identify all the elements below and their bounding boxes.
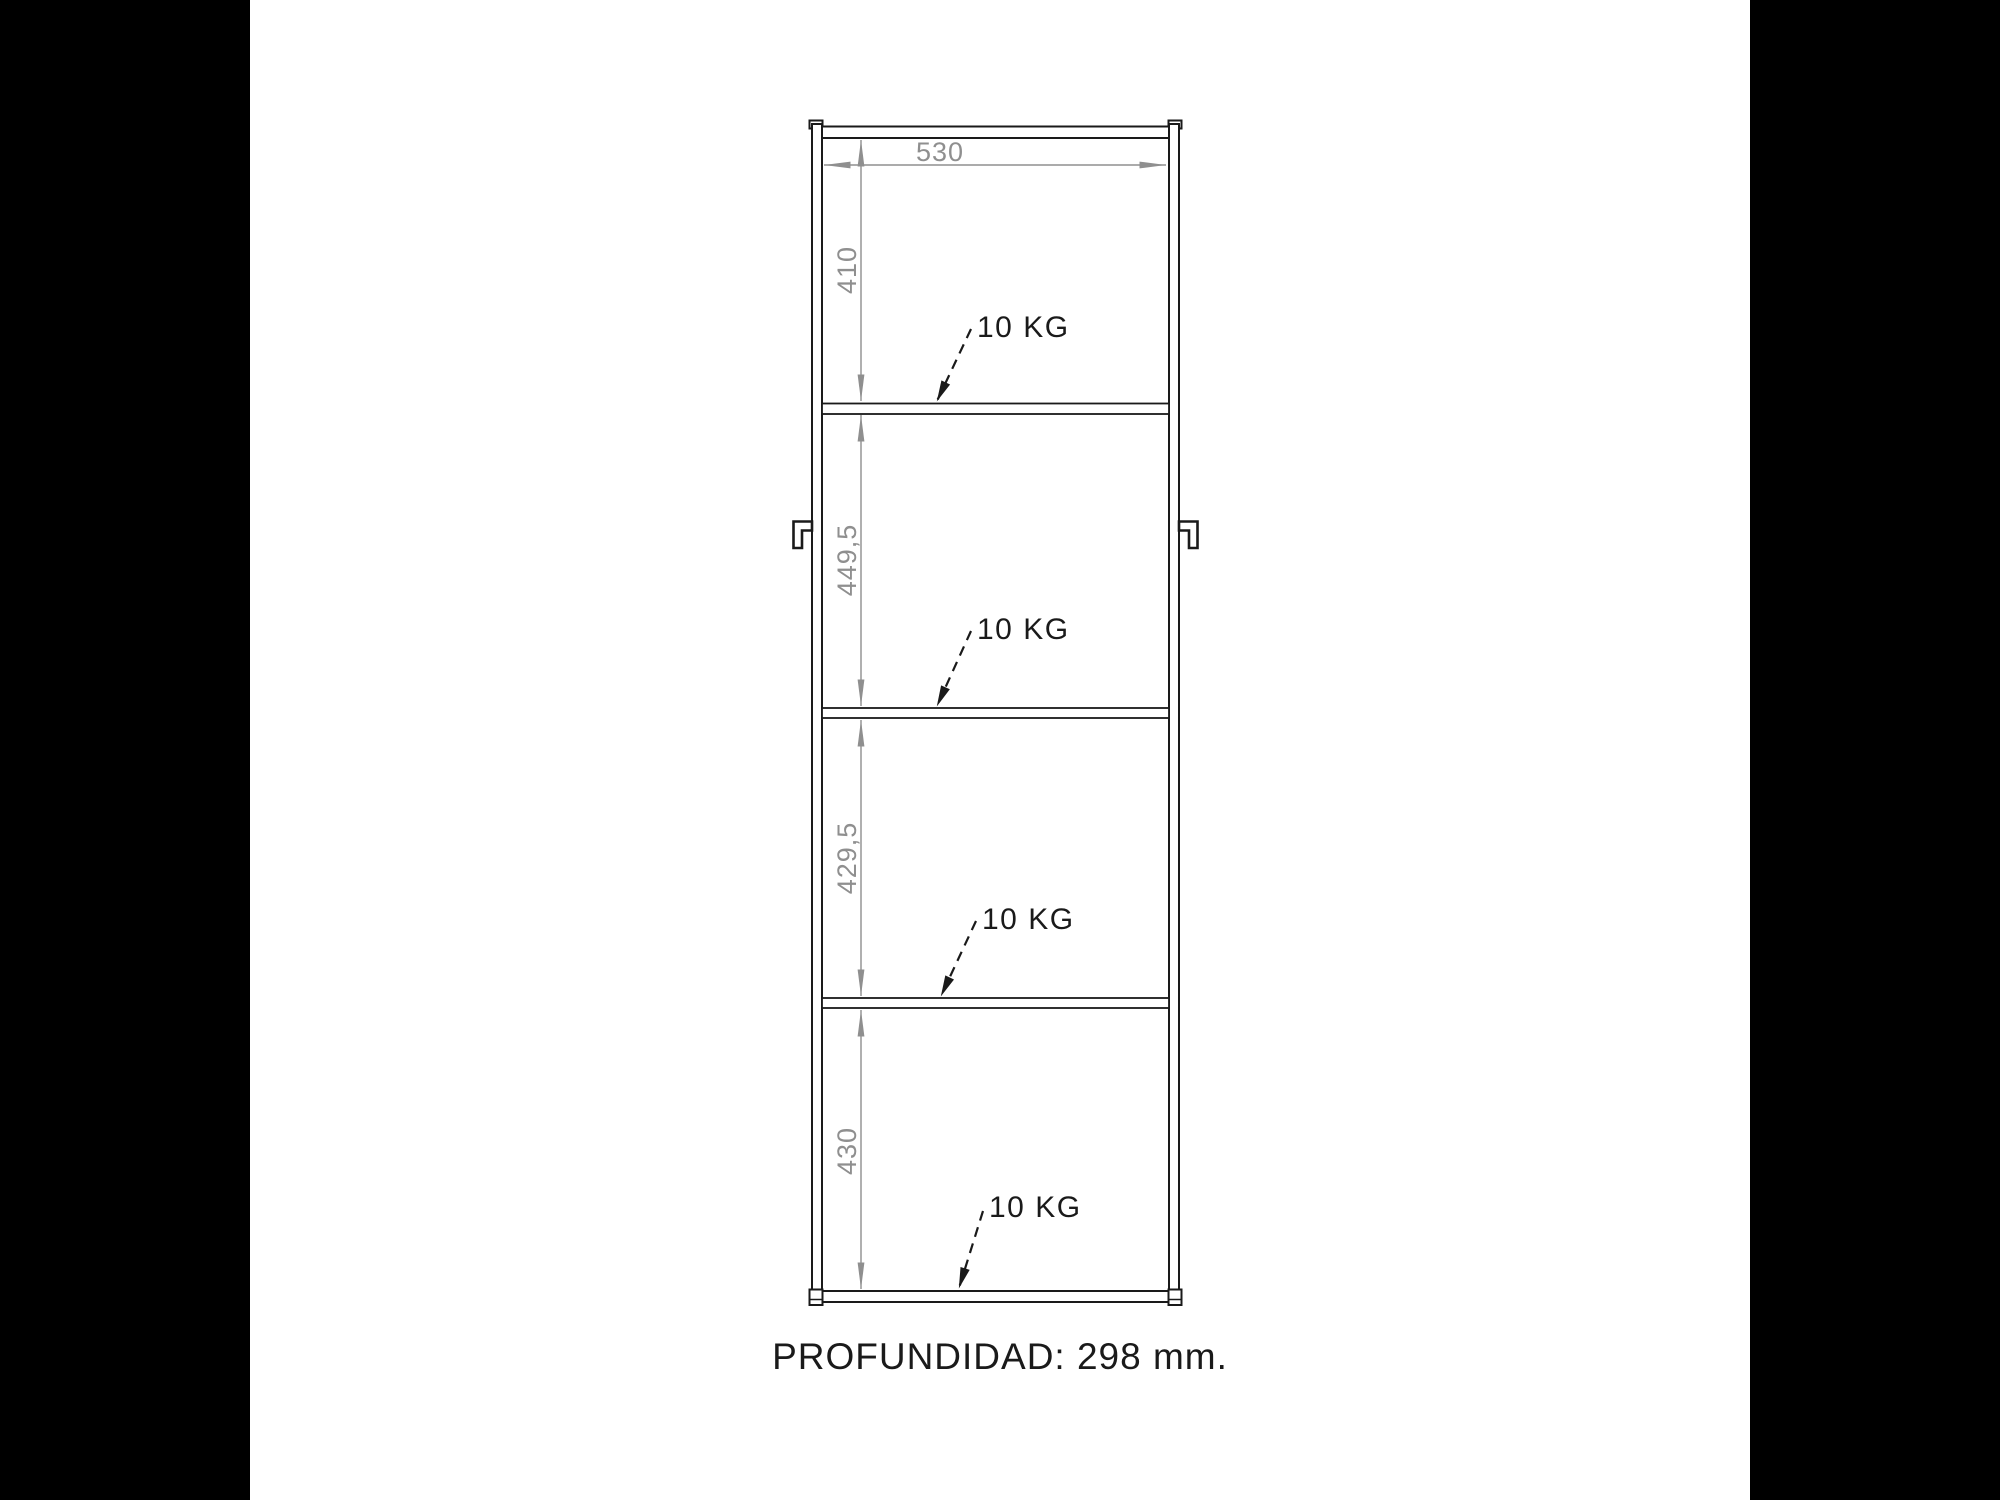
foot-right bbox=[1169, 1290, 1182, 1306]
load-leader-4 bbox=[959, 1211, 983, 1288]
shelf-3 bbox=[822, 998, 1169, 1008]
foot-left bbox=[810, 1290, 823, 1306]
shelf-unit-drawing: 530 410 449,5 429,5 430 10 KG 10 KG 10 K… bbox=[0, 0, 2000, 1500]
wall-bracket-right bbox=[1179, 522, 1198, 549]
load-label-4: 10 KG bbox=[989, 1191, 1082, 1224]
side-panel-right bbox=[1169, 124, 1179, 1305]
compartment-1-height-value: 410 bbox=[832, 246, 862, 294]
load-leader-3 bbox=[941, 921, 976, 996]
technical-drawing-page: 530 410 449,5 429,5 430 10 KG 10 KG 10 K… bbox=[0, 0, 2000, 1500]
compartment-3-height-value: 429,5 bbox=[832, 822, 862, 895]
shelf-2 bbox=[822, 708, 1169, 718]
load-label-1: 10 KG bbox=[977, 311, 1070, 344]
bottom-panel bbox=[822, 1291, 1169, 1302]
wall-bracket-left bbox=[794, 522, 813, 549]
load-annotations: 10 KG 10 KG 10 KG 10 KG bbox=[937, 311, 1082, 1288]
shelf-1 bbox=[822, 404, 1169, 415]
width-dimension-value: 530 bbox=[916, 137, 964, 167]
load-label-2: 10 KG bbox=[977, 613, 1070, 646]
compartment-4-height-value: 430 bbox=[832, 1127, 862, 1175]
load-leader-2 bbox=[937, 631, 971, 706]
letterbox-left bbox=[0, 0, 250, 1500]
compartment-2-height-value: 449,5 bbox=[832, 524, 862, 597]
load-leader-1 bbox=[937, 329, 971, 401]
depth-note: PROFUNDIDAD: 298 mm. bbox=[772, 1336, 1228, 1377]
side-panel-left bbox=[812, 124, 822, 1305]
load-label-3: 10 KG bbox=[982, 903, 1075, 936]
top-panel bbox=[822, 127, 1169, 139]
letterbox-right bbox=[1750, 0, 2000, 1500]
